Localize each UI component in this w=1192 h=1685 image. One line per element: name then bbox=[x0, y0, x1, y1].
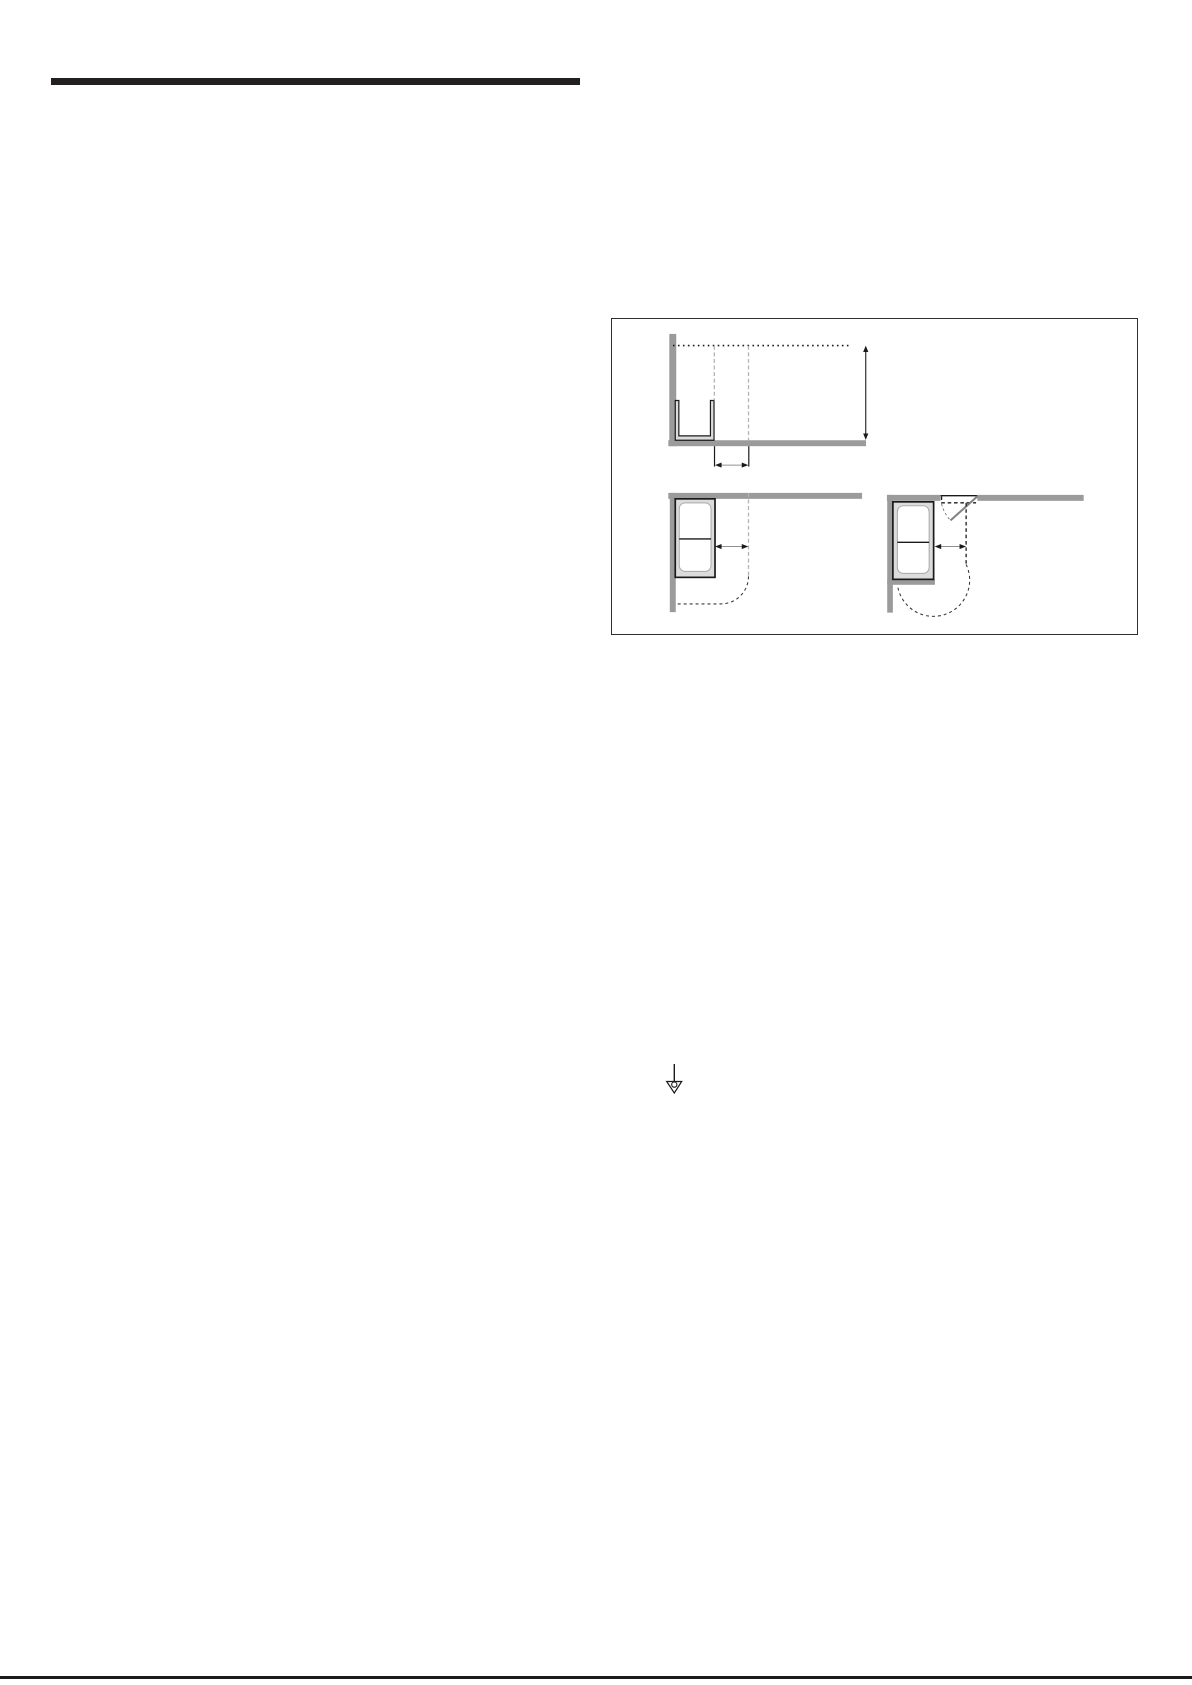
top-view-corner-right-figure bbox=[887, 495, 1084, 616]
clearance-dimension-arrow bbox=[715, 544, 748, 549]
footer-rule bbox=[0, 1676, 1192, 1679]
floor bbox=[668, 440, 866, 446]
manual-page bbox=[0, 0, 1192, 1685]
rear-wall bbox=[668, 493, 862, 499]
height-dimension-line bbox=[863, 346, 868, 440]
door-swing-arc bbox=[676, 576, 748, 604]
side-wall bbox=[887, 495, 893, 613]
front-view-clearance-figure bbox=[668, 334, 868, 468]
width-dimension-line bbox=[715, 462, 748, 467]
clearance-dimension-arrow bbox=[935, 544, 967, 549]
niche-door-open bbox=[951, 496, 978, 520]
top-view-corner-left-figure bbox=[668, 493, 862, 612]
speaker-inner-outline bbox=[679, 503, 711, 572]
niche-door-swing-arc bbox=[942, 504, 951, 521]
installation-diagram-panel bbox=[611, 318, 1138, 635]
rear-wall-left-segment bbox=[887, 495, 941, 501]
rear-wall-right-segment bbox=[977, 495, 1083, 501]
mounting-bracket-u-channel bbox=[675, 400, 714, 440]
earth-ground-icon bbox=[660, 1058, 690, 1098]
speaker-inner-outline bbox=[897, 506, 929, 574]
installation-diagrams bbox=[612, 319, 1137, 634]
header-divider-bar bbox=[51, 78, 580, 85]
